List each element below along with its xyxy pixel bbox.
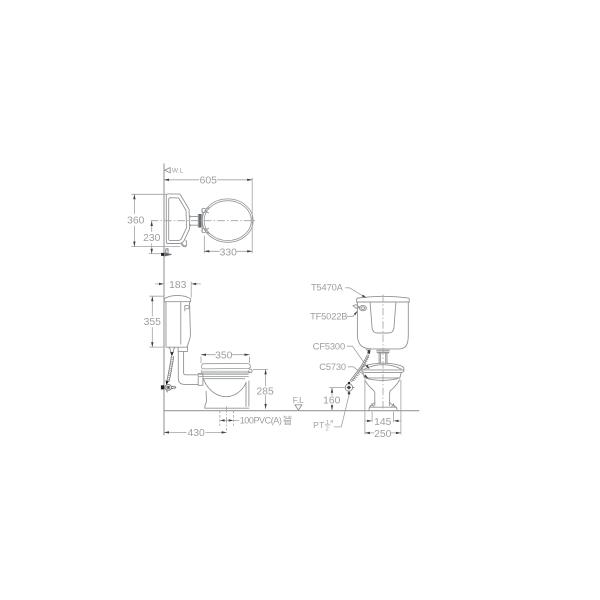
svg-text:145: 145: [374, 417, 392, 428]
svg-text:2: 2: [326, 427, 329, 433]
svg-text:TF5022B: TF5022B: [310, 312, 347, 322]
svg-text:100PVC(A): 100PVC(A): [240, 416, 282, 426]
svg-text:285: 285: [256, 386, 274, 397]
svg-text:360: 360: [127, 215, 145, 226]
svg-text:1: 1: [326, 420, 329, 426]
svg-text:230: 230: [143, 233, 161, 244]
svg-text:605: 605: [200, 175, 218, 186]
svg-text:183: 183: [169, 280, 187, 291]
svg-text:350: 350: [215, 350, 233, 361]
svg-text:160: 160: [323, 396, 341, 407]
svg-text:355: 355: [144, 317, 162, 328]
svg-text:CF5300: CF5300: [313, 341, 345, 351]
svg-text:330: 330: [220, 248, 238, 259]
svg-text:C5730: C5730: [319, 362, 346, 372]
svg-text:250: 250: [374, 429, 392, 440]
svg-text:PT: PT: [313, 420, 325, 430]
svg-text:F.L: F.L: [293, 395, 304, 405]
svg-text:T5470A: T5470A: [311, 283, 344, 293]
svg-text:430: 430: [187, 428, 205, 439]
svg-text:W.L: W.L: [172, 167, 184, 174]
